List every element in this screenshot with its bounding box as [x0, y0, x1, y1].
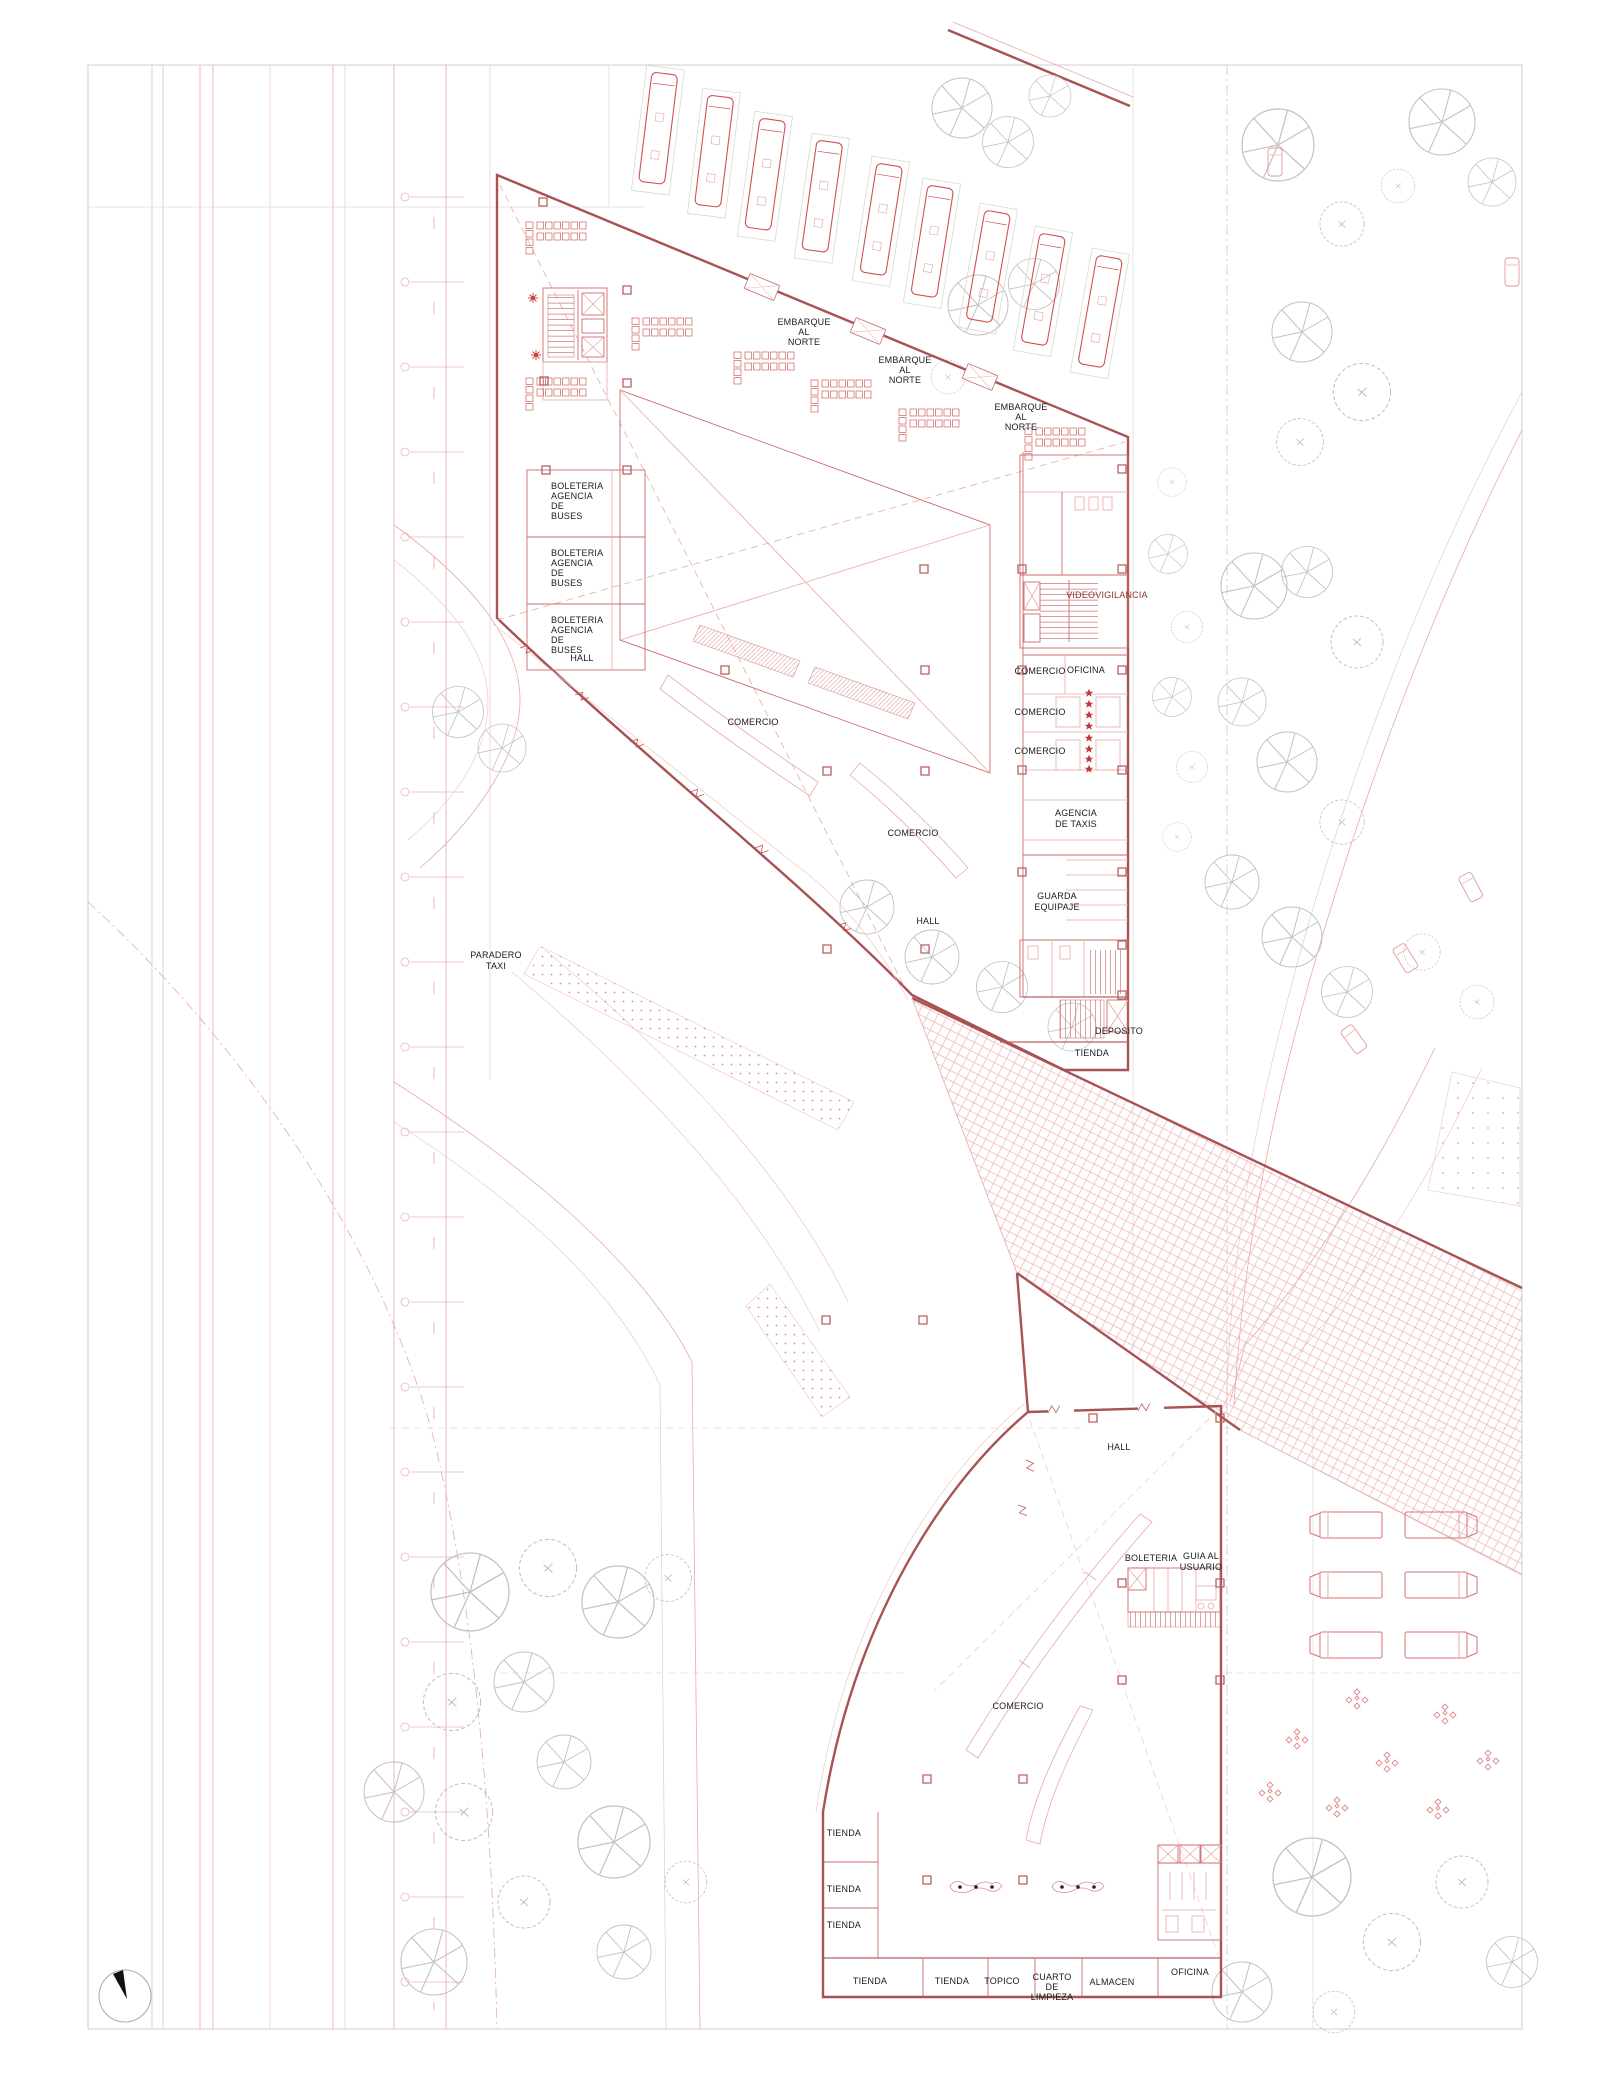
label-embarque-1: AL — [798, 327, 809, 337]
tree-icon — [665, 1861, 707, 1903]
label-paradero-taxi: PARADERO — [470, 950, 521, 960]
tree-icon — [1409, 89, 1475, 155]
label-boleteria: BOLETERIA — [1125, 1553, 1177, 1563]
label-cuarto-limpieza: DE — [1046, 1982, 1059, 1992]
tree-icon — [1272, 302, 1332, 362]
label-tienda-5: TIENDA — [853, 1976, 887, 1986]
tree-icon — [931, 360, 965, 394]
label-boleteria-agencia-3: BOLETERIA — [551, 615, 603, 625]
label-boleteria-agencia-3: AGENCIA — [551, 625, 593, 635]
tree-icon — [1363, 1913, 1420, 1970]
bench-icon — [1052, 1881, 1104, 1892]
bench-icon — [950, 1881, 1002, 1892]
bus-icon — [687, 88, 740, 218]
lower-kiosks — [966, 1514, 1152, 1844]
label-boleteria-agencia-2: BOLETERIA — [551, 548, 603, 558]
tree-icon — [582, 1566, 654, 1638]
tree-icon — [948, 275, 1008, 335]
bus-icon — [1310, 1572, 1382, 1598]
tree-icon — [1331, 616, 1383, 668]
plant-icon — [528, 293, 538, 303]
bus-icon — [1310, 1512, 1382, 1538]
tree-icon — [1221, 553, 1287, 619]
label-comercio-2: COMERCIO — [887, 828, 938, 838]
plant-icon — [531, 350, 541, 360]
sheet-border — [88, 65, 1522, 2029]
bus-icon — [794, 133, 849, 263]
tree-icon — [840, 880, 894, 934]
label-boleteria-agencia-3: DE — [551, 635, 564, 645]
central-void — [620, 390, 990, 773]
label-guarda-equipaje: EQUIPAJE — [1034, 902, 1079, 912]
tree-icon — [519, 1539, 576, 1596]
bus-icon — [1013, 226, 1072, 357]
tree-icon — [597, 1925, 651, 1979]
label-embarque-3: EMBARQUE — [994, 402, 1047, 412]
tree-icon — [1205, 855, 1259, 909]
label-boleteria-agencia-1: DE — [551, 501, 564, 511]
tree-icon — [1029, 75, 1071, 117]
car-icon — [1340, 1024, 1368, 1055]
car-icon — [1458, 871, 1484, 902]
shrub-icon — [1434, 1704, 1456, 1724]
tree-icon — [1320, 202, 1364, 246]
shrub-clusters — [1259, 1689, 1499, 1819]
tree-icon — [1320, 800, 1364, 844]
seating-icon — [526, 378, 586, 410]
shrub-icon — [1376, 1752, 1398, 1772]
shrub-icon — [1346, 1689, 1368, 1709]
tree-icon — [478, 724, 526, 772]
tree-icon — [1313, 1991, 1355, 2033]
tree-icon — [1153, 678, 1192, 717]
tree-icon — [1149, 535, 1188, 574]
tree-icon — [645, 1555, 692, 1602]
tree-icon — [905, 930, 959, 984]
label-comercio-6: COMERCIO — [992, 1701, 1043, 1711]
north-entrances — [744, 273, 998, 390]
bus-icon — [1405, 1632, 1477, 1658]
label-embarque-1: NORTE — [788, 337, 820, 347]
parked-cars — [1268, 148, 1519, 1055]
label-comercio-5: COMERCIO — [1014, 746, 1065, 756]
tree-icon — [1277, 419, 1324, 466]
tree-icon — [932, 78, 992, 138]
label-guarda-equipaje: GUARDA — [1037, 891, 1077, 901]
bus-icon — [631, 65, 684, 195]
seating-icon — [734, 352, 794, 384]
tree-icon — [1322, 967, 1373, 1018]
label-tienda-6: TIENDA — [935, 1976, 969, 1986]
label-tienda-2: TIENDA — [827, 1828, 861, 1838]
bus-icon — [852, 156, 909, 286]
label-comercio-4: COMERCIO — [1014, 707, 1065, 717]
label-cuarto-limpieza: LIMPIEZA — [1031, 1992, 1074, 2002]
label-oficina-1: OFICINA — [1067, 665, 1105, 675]
car-icon — [1505, 258, 1519, 286]
north-arrow-icon — [99, 1970, 151, 2022]
label-embarque-3: AL — [1015, 412, 1026, 422]
tree-icon — [1163, 823, 1192, 852]
label-guia-usuario: GUIA AL — [1183, 1551, 1219, 1561]
label-comercio-1: COMERCIO — [727, 717, 778, 727]
tree-icon — [983, 117, 1034, 168]
label-oficina-2: OFICINA — [1171, 1967, 1209, 1977]
lower-building — [816, 1400, 1221, 1997]
tree-icon — [1436, 1856, 1488, 1908]
tree-icon — [1176, 751, 1207, 782]
tree-icon — [1242, 109, 1314, 181]
tree-icon — [1257, 732, 1317, 792]
tree-icon — [578, 1806, 650, 1878]
stair-block-se — [1158, 1845, 1221, 1940]
seating-icon — [899, 409, 959, 441]
label-tienda-1: TIENDA — [1075, 1048, 1109, 1058]
label-hall-1: HALL — [570, 653, 593, 663]
tree-icon — [1158, 468, 1187, 497]
tree-icon — [1460, 985, 1494, 1019]
label-embarque-1: EMBARQUE — [777, 317, 830, 327]
tree-icon — [498, 1876, 550, 1928]
tree-icon — [1487, 1937, 1538, 1988]
plaza-walkway — [912, 998, 1522, 1575]
label-embarque-2: EMBARQUE — [878, 355, 931, 365]
tree-icon — [1381, 169, 1415, 203]
column-markers — [539, 198, 1224, 1884]
label-hall-3: HALL — [1107, 1442, 1130, 1452]
shrub-icon — [1477, 1750, 1499, 1770]
label-boleteria-agencia-2: AGENCIA — [551, 558, 593, 568]
seating-icon — [811, 380, 871, 412]
label-guia-usuario: USUARIO — [1180, 1562, 1222, 1572]
car-icon — [1392, 943, 1419, 974]
label-boleteria-agencia-2: BUSES — [551, 578, 583, 588]
tree-icon — [494, 1652, 554, 1712]
label-comercio-3: COMERCIO — [1014, 666, 1065, 676]
bus-icon — [1070, 248, 1129, 379]
bus-icon — [903, 178, 960, 308]
bus-icon — [1310, 1632, 1382, 1658]
label-deposito: DEPOSITO — [1095, 1026, 1143, 1036]
label-hall-2: HALL — [916, 916, 939, 926]
shrub-icon — [1259, 1782, 1281, 1802]
label-embarque-2: NORTE — [889, 375, 921, 385]
seating-icon — [526, 222, 586, 254]
label-embarque-2: AL — [899, 365, 910, 375]
label-tienda-4: TIENDA — [827, 1920, 861, 1930]
tree-icon — [1468, 158, 1516, 206]
shrub-icon — [1326, 1797, 1348, 1817]
label-topico: TOPICO — [984, 1976, 1020, 1986]
tree-icon — [1333, 363, 1390, 420]
bus-icon — [1405, 1572, 1477, 1598]
ticket-counter — [1128, 1568, 1220, 1627]
label-paradero-taxi: TAXI — [486, 961, 506, 971]
seating-icon — [632, 318, 692, 350]
hall-kiosks — [660, 675, 968, 878]
label-boleteria-agencia-2: DE — [551, 568, 564, 578]
label-agencia-taxis: AGENCIA — [1055, 808, 1097, 818]
bus-icon — [737, 111, 792, 241]
drawing-sheet: EMBARQUE AL NORTE EMBARQUE AL NORTE EMBA… — [0, 0, 1616, 2098]
tree-icon — [1262, 907, 1322, 967]
shrub-icon — [1286, 1729, 1308, 1749]
tree-icon — [1273, 1838, 1351, 1916]
tree-icon — [537, 1735, 591, 1789]
shrub-icon — [1427, 1799, 1449, 1819]
label-almacen: ALMACEN — [1090, 1977, 1135, 1987]
label-embarque-3: NORTE — [1005, 422, 1037, 432]
label-agencia-taxis: DE TAXIS — [1055, 819, 1097, 829]
label-boleteria-agencia-1: BUSES — [551, 511, 583, 521]
site-plan-canvas: EMBARQUE AL NORTE EMBARQUE AL NORTE EMBA… — [0, 0, 1616, 2098]
label-videovigilancia: VIDEOVIGILANCIA — [1066, 590, 1148, 600]
tree-icon — [1218, 678, 1266, 726]
label-boleteria-agencia-1: BOLETERIA — [551, 481, 603, 491]
label-tienda-3: TIENDA — [827, 1884, 861, 1894]
label-cuarto-limpieza: CUARTO — [1033, 1972, 1072, 1982]
road-station-ticks — [398, 155, 468, 2010]
tree-icon — [1171, 611, 1202, 642]
label-boleteria-agencia-1: AGENCIA — [551, 491, 593, 501]
tree-icon — [1282, 547, 1333, 598]
